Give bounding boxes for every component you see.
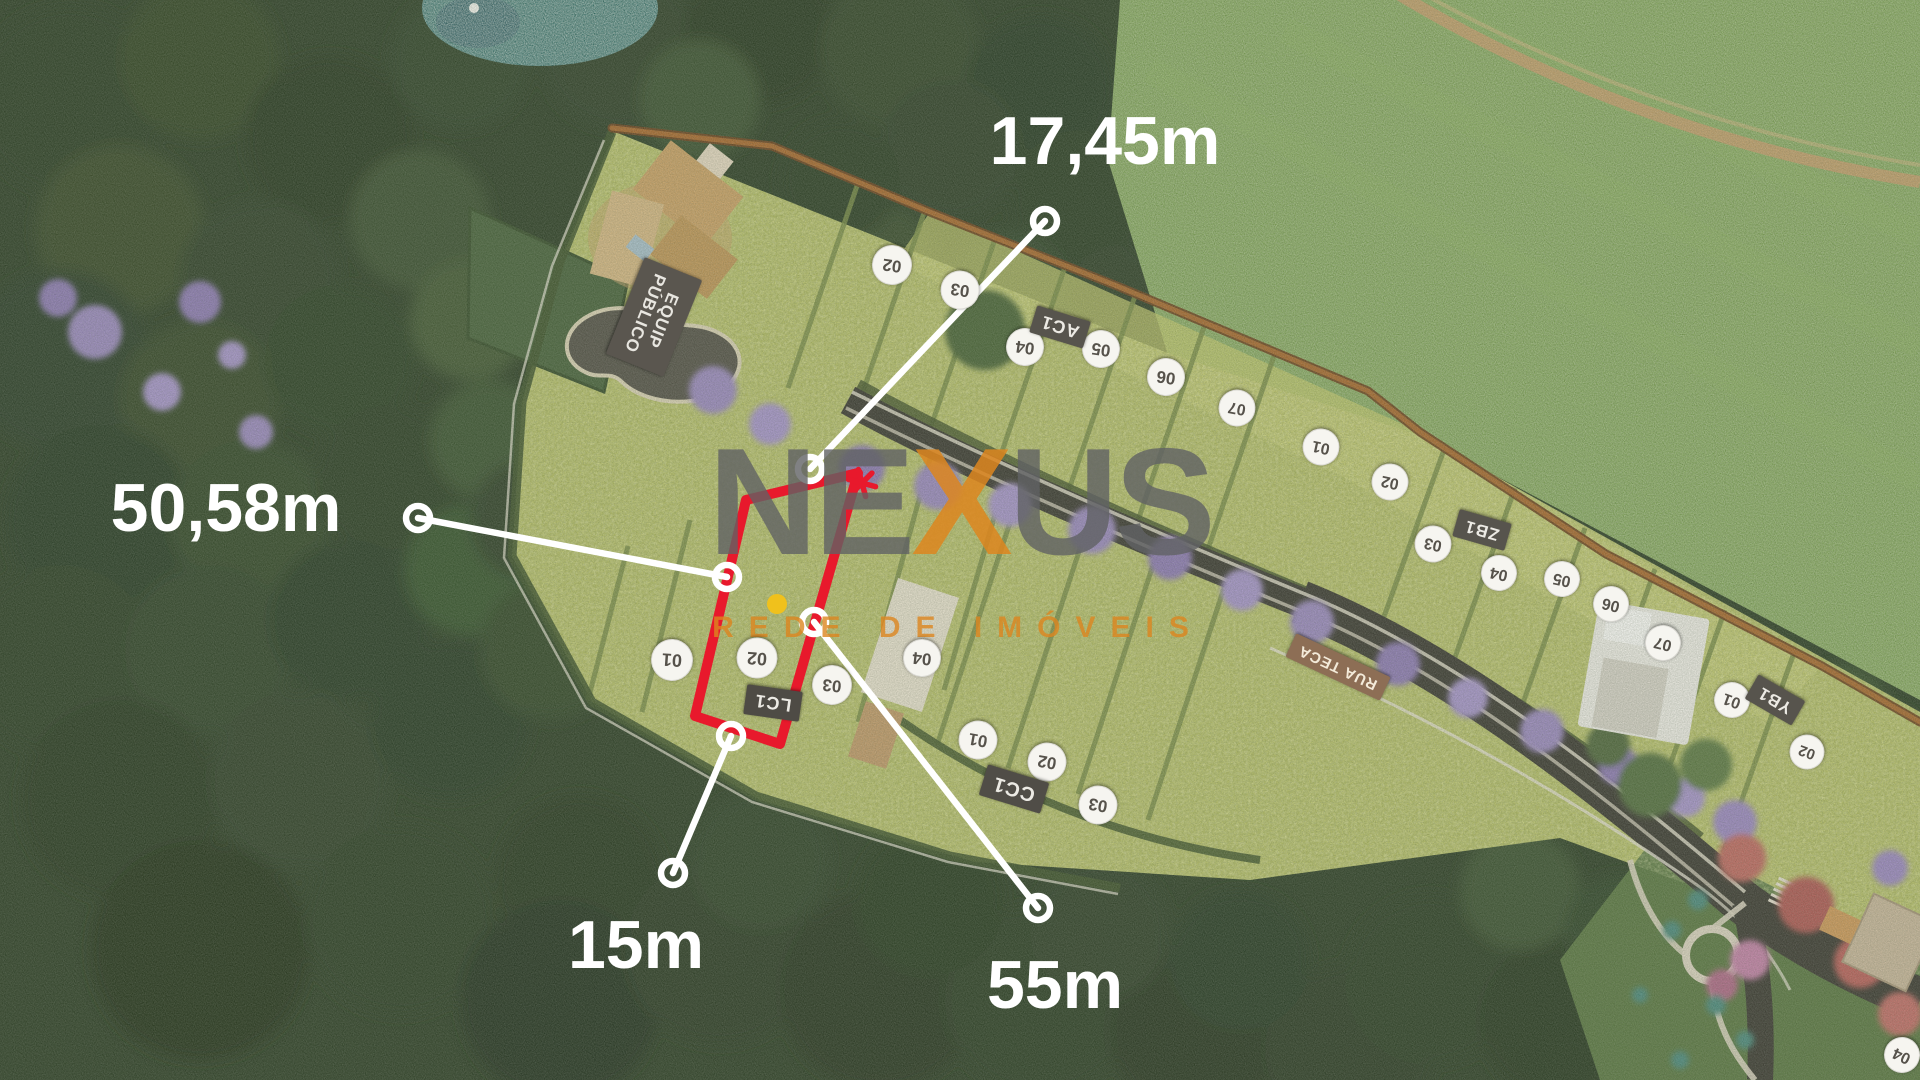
lot-badge-SE-corner-04: 04 [1878,1031,1920,1079]
lot-badge-LC1-03: 03 [810,663,854,707]
lot-badge-LC1-04: 04 [901,637,943,679]
lot-badge-AC1-07: 07 [1216,387,1259,430]
lot-badge-LC1-01: 01 [650,638,695,683]
lot-badge-CC1-01: 01 [955,717,1000,762]
lot-badge-ZB1-02: 02 [1368,460,1412,504]
aerial-site-photo: NEXUS REDE DE IMÓVEIS 17,45m50,58m15m55m… [0,0,1920,1080]
lot-badge-ZB1-05: 05 [1541,558,1584,601]
measure-label-front-width: 15m [568,906,704,984]
sign-zone-zb1: ZB1 [1452,509,1512,551]
lot-badge-YB1-02: 02 [1785,730,1830,775]
measure-label-right-side: 55m [987,946,1123,1024]
lot-badge-ZB1-03: 03 [1411,522,1455,566]
annotation-labels: 17,45m50,58m15m55m0203040506070102030405… [0,0,1920,1080]
sign-zone-lc1: LC1 [743,684,803,722]
lot-badge-AC1-02: 02 [869,242,914,287]
lot-badge-AC1-06: 06 [1145,356,1188,399]
lot-badge-ZB1-07: 07 [1641,621,1685,665]
measure-label-left-side: 50,58m [111,469,342,547]
sign-zone-yb1: YB1 [1745,674,1806,725]
sign-street-rua-teca: RUA TECA [1285,633,1390,701]
lot-badge-ZB1-06: 06 [1589,582,1633,626]
measure-label-back-width: 17,45m [990,102,1221,180]
sign-equip-publico: EQUIP PÚBLICO [606,257,702,377]
lot-badge-LC1-02: 02 [735,636,779,680]
lot-badge-ZB1-01: 01 [1299,425,1343,469]
lot-badge-ZB1-04: 04 [1478,552,1521,595]
lot-badge-CC1-03: 03 [1075,782,1120,827]
lot-badge-AC1-03: 03 [938,268,982,312]
